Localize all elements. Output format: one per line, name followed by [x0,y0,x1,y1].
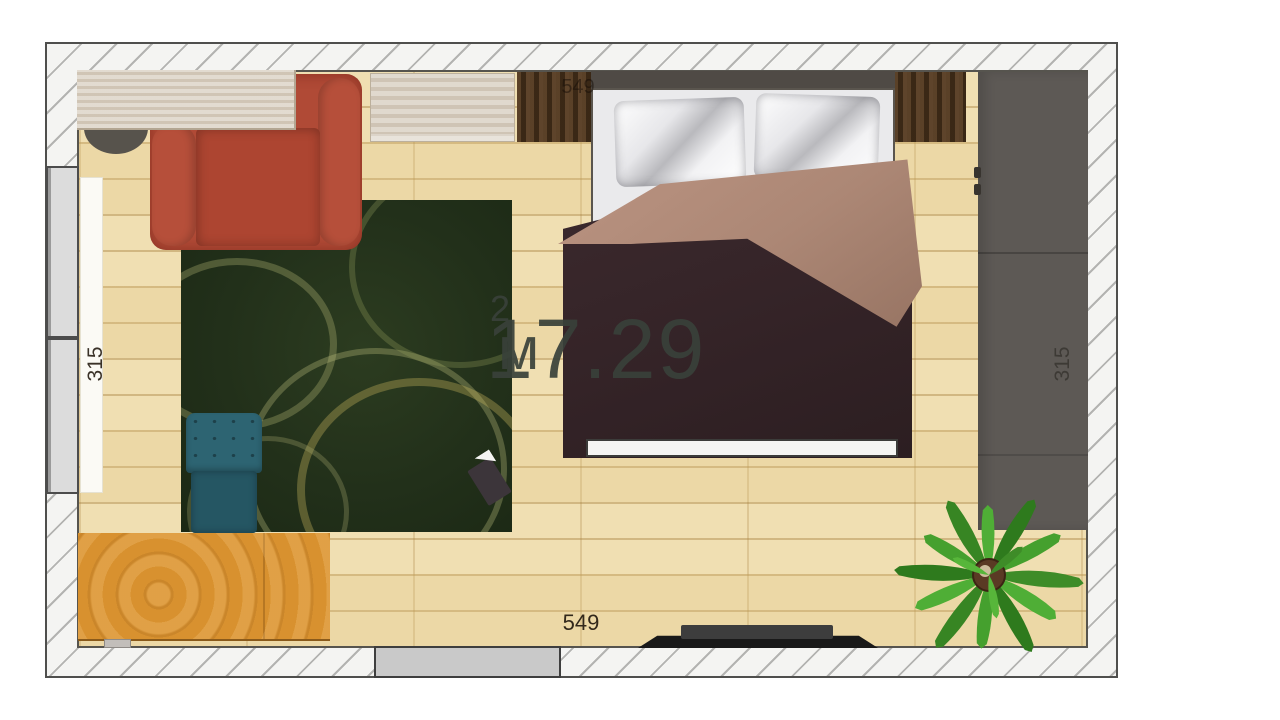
armchair-left-armrest [152,124,196,246]
wardrobe-handle [974,167,981,178]
bed-pillow-left [614,97,747,187]
kids-chair-backrest [186,413,262,473]
armchair-seat [196,128,320,246]
potted-plant[interactable] [888,494,1090,656]
tv[interactable] [681,625,833,639]
floor-threshold [104,639,131,648]
kids-chair[interactable] [186,413,262,535]
armchair-right-armrest [318,78,360,246]
kids-chair-seat [191,471,257,533]
area-superscript: 2 [490,254,512,364]
window[interactable] [46,166,79,494]
bed-footboard [586,439,898,457]
wardrobe[interactable] [978,72,1088,530]
coffee-table[interactable] [78,533,330,641]
door[interactable] [374,646,561,678]
dimension-label-top: 549 [552,76,604,99]
wall-shelf[interactable] [370,73,515,142]
dimension-label-right: 315 [1051,329,1075,399]
plant-icon [888,494,1090,656]
dimension-label-left: 315 [84,329,108,399]
floor-plan-canvas: 549 549 315 315 17.29м2 [0,0,1280,720]
room-area-label: 17.29м2 [486,294,846,414]
dimension-label-bottom: 549 [551,610,611,636]
wardrobe-seam [978,252,1088,254]
wardrobe-seam [978,454,1088,456]
window-divider [46,336,79,340]
wardrobe-handle [974,184,981,195]
desk[interactable] [77,70,296,130]
